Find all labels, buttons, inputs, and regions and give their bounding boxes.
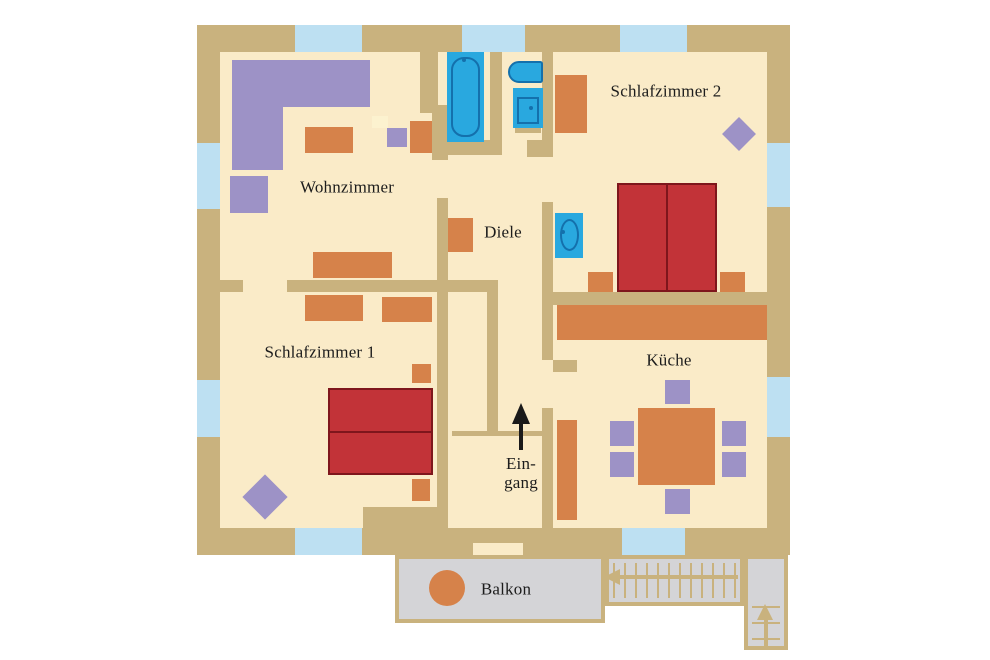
window-bottom-2	[622, 528, 685, 555]
kueche-chair-right-2	[722, 452, 746, 477]
room-label-wohnzimmer: Wohnzimmer	[300, 177, 394, 196]
kueche-chair-right-1	[722, 421, 746, 446]
washbasin-bad	[513, 88, 543, 128]
room-label-kueche: Küche	[646, 350, 691, 369]
wall-bad-left-upper	[420, 52, 438, 113]
window-right-2	[767, 377, 790, 437]
sz1-wardrobe-right	[382, 297, 432, 322]
sz2-double-bed	[617, 183, 717, 292]
window-top-3	[620, 25, 687, 52]
wz-sofa-left	[232, 107, 283, 170]
stair-arrow-up-shaft	[764, 618, 768, 646]
entrance-arrow-shaft	[519, 422, 523, 450]
door-eingang-balkon	[473, 543, 523, 555]
sz2-wardrobe	[555, 75, 587, 133]
basin-tap	[529, 106, 533, 110]
staircase-run-upper	[605, 555, 744, 606]
kueche-chair-bottom	[665, 489, 690, 514]
sz1-nightstand-bottom	[412, 479, 430, 501]
window-right-1	[767, 143, 790, 207]
stair-arrow-left-shaft	[618, 575, 738, 579]
kueche-chair-top	[665, 380, 690, 404]
wall-eingang-threshold	[452, 431, 543, 436]
window-bottom-1	[295, 528, 362, 555]
wall-sz2-kueche	[542, 292, 767, 305]
apartment-floor-plan: WohnzimmerSchlafzimmer 2DieleSchlafzimme…	[0, 0, 990, 660]
basin-bowl	[517, 97, 539, 124]
tub-rim	[451, 57, 480, 137]
window-top-1	[295, 25, 362, 52]
window-left-2	[197, 380, 220, 437]
washbasin-sz2	[555, 213, 583, 258]
sz2-nightstand-left	[588, 272, 613, 292]
wz-armchair	[230, 176, 268, 213]
basin-bowl	[560, 219, 579, 251]
bed-divider	[666, 185, 668, 290]
kueche-shelf	[557, 420, 577, 520]
room-label-balkon: Balkon	[481, 579, 531, 598]
wz-sofa-top	[232, 60, 370, 107]
wz-tv-board	[387, 128, 407, 147]
kueche-chair-left-1	[610, 421, 634, 446]
kueche-counter	[557, 305, 767, 340]
stair-steps	[613, 563, 736, 598]
wz-coffee-table	[305, 127, 353, 153]
sz1-wardrobe-left	[305, 295, 363, 321]
room-label-diele: Diele	[484, 222, 522, 241]
wall-wz-sz1-stub	[218, 280, 243, 292]
sz2-nightstand-right	[720, 272, 745, 292]
wall-wz-sz1	[287, 280, 498, 292]
entrance-arrow-icon	[512, 403, 530, 424]
room-label-eingang: Ein- gang	[504, 454, 538, 492]
kueche-chair-left-2	[610, 452, 634, 477]
wall-diele-kueche	[542, 408, 553, 530]
room-label-schlafzimmer1: Schlafzimmer 1	[265, 342, 376, 361]
wall-eingang-inner	[487, 292, 498, 433]
wall-central	[437, 198, 448, 530]
sz1-double-bed	[328, 388, 433, 475]
wz-cabinet	[410, 121, 432, 153]
tub-drain	[462, 58, 466, 62]
window-top-2	[462, 25, 525, 52]
diele-cabinet	[448, 218, 473, 252]
wz-side-table	[372, 116, 388, 128]
wall-diele-sz2	[542, 202, 553, 360]
wall-wc-right	[542, 52, 553, 157]
toilet	[508, 61, 543, 83]
sz1-nightstand-top	[412, 364, 431, 383]
window-left-1	[197, 143, 220, 209]
wall-bad-wc-divider	[490, 52, 502, 144]
kueche-table	[638, 408, 715, 485]
bed-divider	[330, 431, 431, 433]
wz-sideboard	[313, 252, 392, 278]
wall-kueche-stub	[553, 360, 577, 372]
basin-tap	[561, 230, 565, 234]
balkon-table	[429, 570, 465, 606]
room-label-schlafzimmer2: Schlafzimmer 2	[611, 81, 722, 100]
wall-eingang-left-mass	[363, 507, 437, 530]
bathtub	[447, 52, 484, 142]
